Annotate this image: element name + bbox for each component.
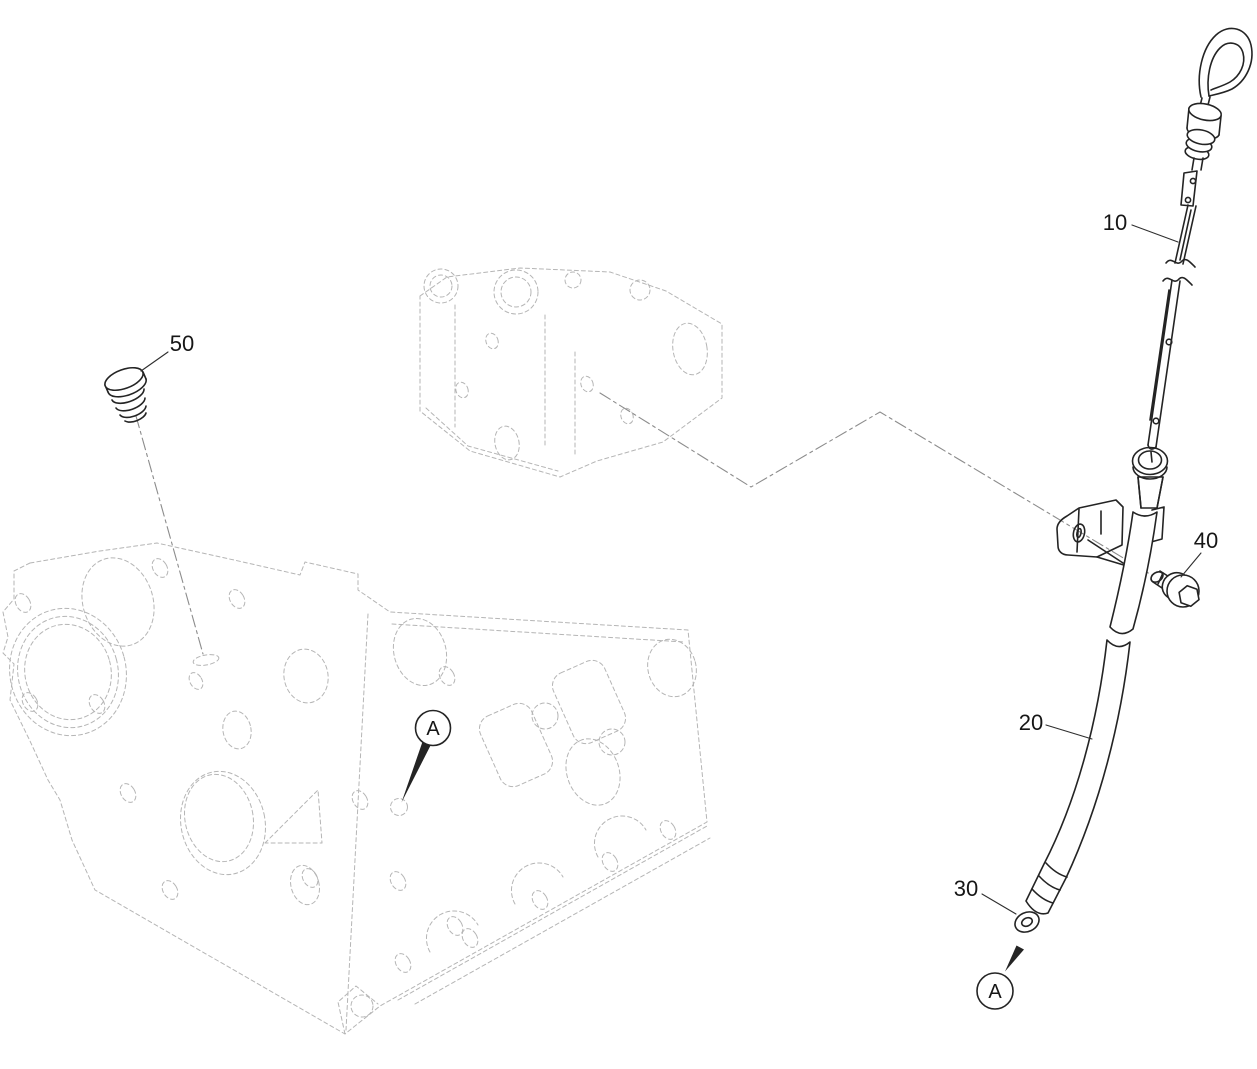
- callout-10: 10: [1103, 210, 1127, 235]
- detail-view-a-block: A: [402, 711, 451, 803]
- detail-view-a-tube-end: A: [977, 946, 1024, 1010]
- assembly-centerlines: [136, 393, 1155, 692]
- blade-hole: [1153, 418, 1159, 424]
- callout-50: 50: [170, 331, 194, 356]
- detail-arrow: [1005, 946, 1024, 972]
- deck-windows: [475, 656, 630, 791]
- dipstick-seal-grooves: [1184, 127, 1216, 170]
- dipstick-guide-tube: [1026, 448, 1168, 914]
- engine-block-outline: [0, 543, 710, 1034]
- dipstick-handle-loop: [1199, 28, 1252, 110]
- cylinder-bore-circles: [0, 548, 703, 908]
- bolt-holes: [12, 556, 679, 975]
- detail-arrow: [402, 742, 431, 803]
- flange-bolt: [1149, 567, 1199, 607]
- parts-diagram-page: A A 10 20 30 40 50: [0, 0, 1257, 1069]
- oil-filler-plug: [102, 363, 146, 422]
- plug-centerline: [136, 416, 203, 654]
- callout-40: 40: [1194, 528, 1218, 553]
- view-a-letter: A: [426, 718, 440, 740]
- callout-20: 20: [1019, 710, 1043, 735]
- parts-diagram-canvas: A A 10 20 30 40 50: [0, 0, 1257, 1069]
- callout-30: 30: [954, 876, 978, 901]
- detail-a-target-hole: [391, 799, 408, 816]
- dipstick-clip: [1181, 171, 1197, 206]
- plug-hole: [192, 653, 219, 667]
- dipstick-blade: [1148, 205, 1196, 462]
- head-to-bolt-centerline: [600, 393, 1155, 577]
- view-a-letter: A: [988, 981, 1002, 1003]
- oil-dipstick: [1148, 28, 1252, 462]
- cylinder-head-outline: [420, 268, 722, 477]
- callouts: 10 20 30 40 50: [141, 210, 1218, 914]
